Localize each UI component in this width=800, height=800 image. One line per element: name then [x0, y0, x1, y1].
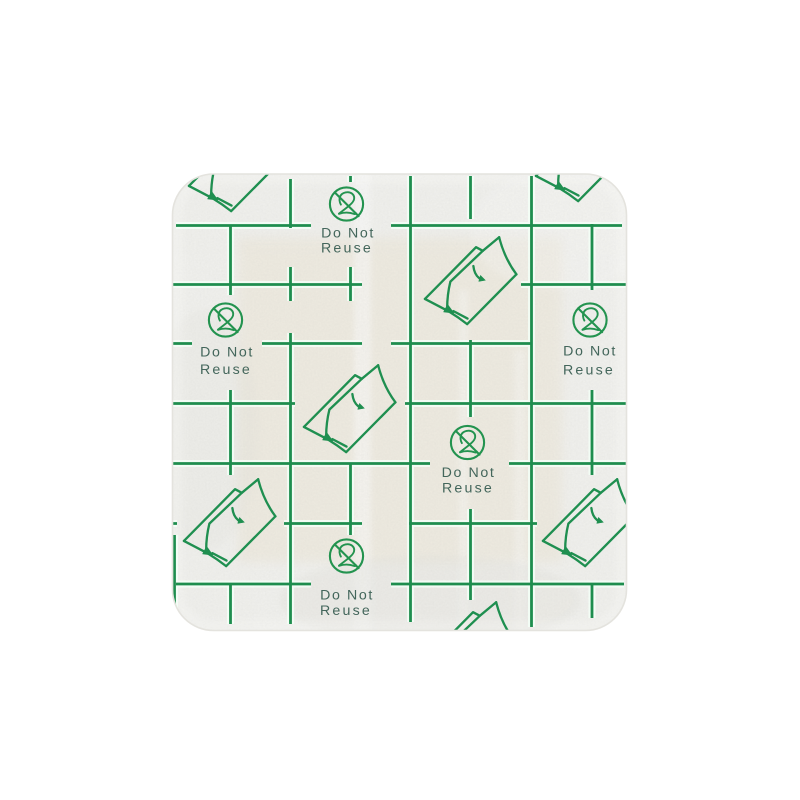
svg-text:Do Not: Do Not — [442, 465, 496, 481]
svg-text:Reuse: Reuse — [442, 481, 494, 497]
svg-text:Reuse: Reuse — [200, 362, 252, 378]
svg-text:Do Not: Do Not — [321, 226, 375, 242]
svg-text:Do Not: Do Not — [563, 344, 617, 360]
svg-text:Reuse: Reuse — [563, 363, 615, 379]
svg-text:Do Not: Do Not — [320, 588, 374, 604]
svg-text:Reuse: Reuse — [321, 241, 373, 257]
svg-text:Do Not: Do Not — [200, 345, 254, 361]
svg-text:Reuse: Reuse — [320, 603, 372, 619]
